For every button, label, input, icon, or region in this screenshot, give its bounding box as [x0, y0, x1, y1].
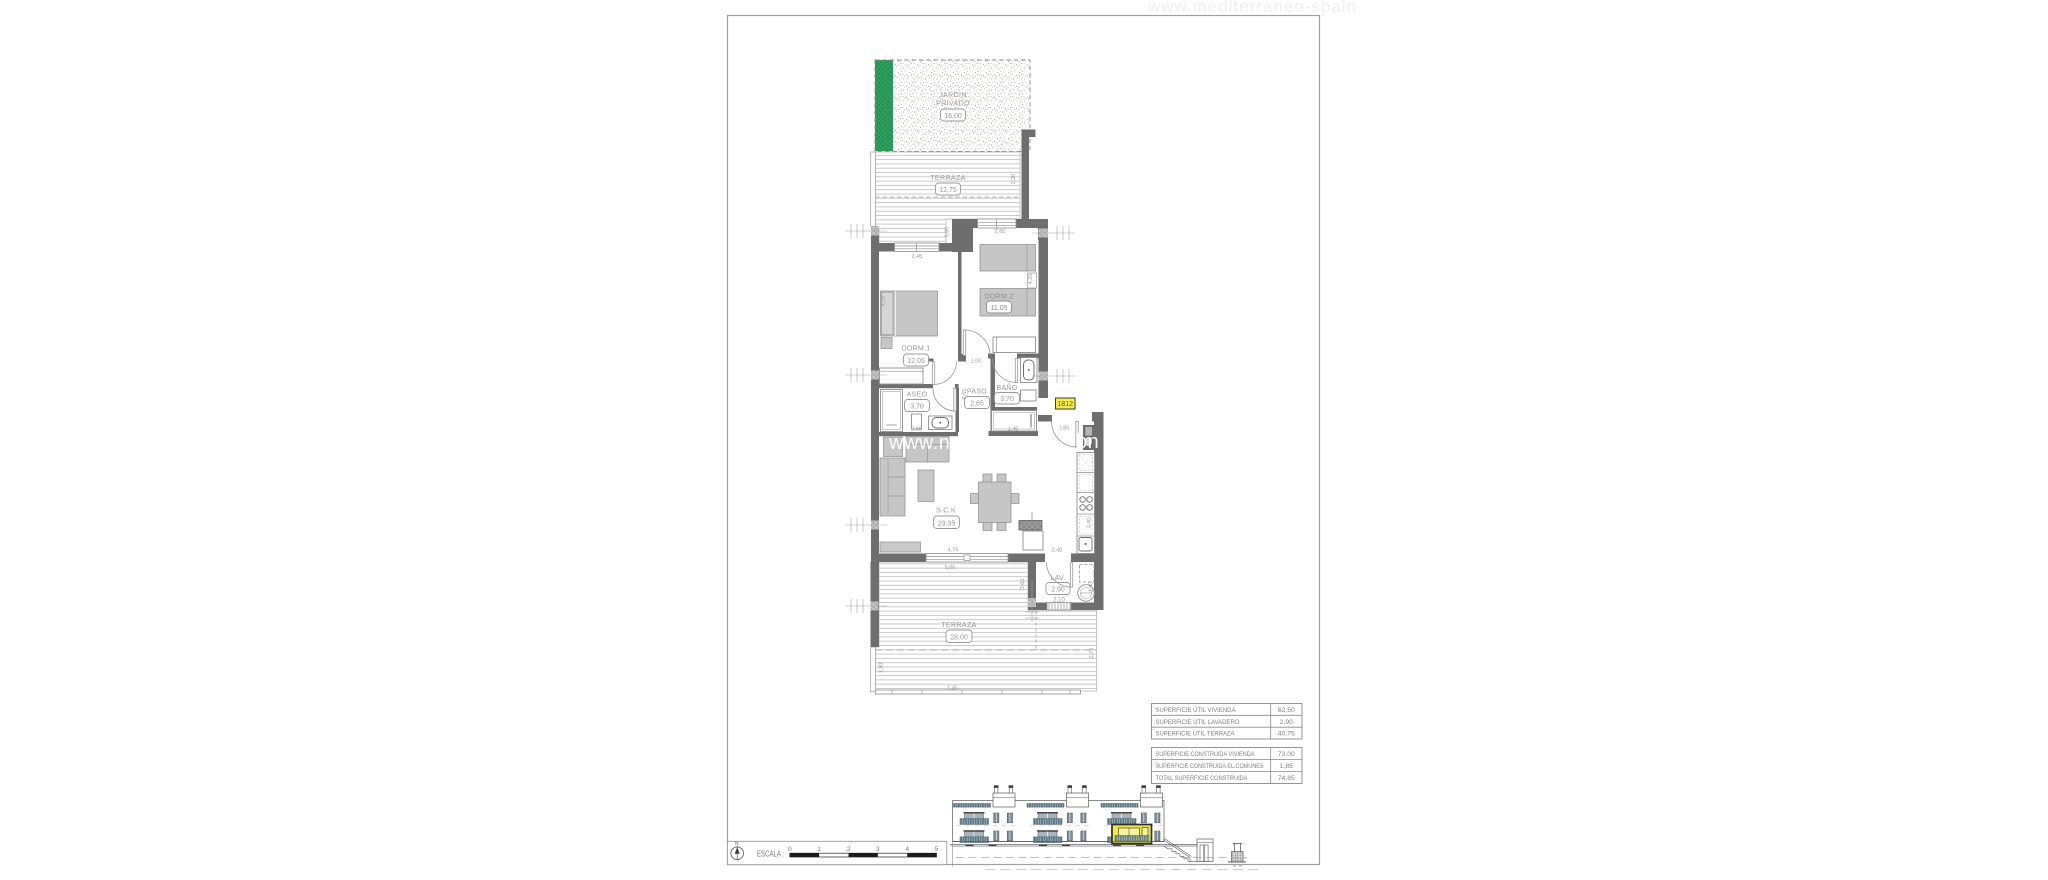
svg-text:2,65: 2,65 — [970, 400, 984, 407]
svg-text:3: 3 — [876, 846, 880, 853]
svg-text:2,60: 2,60 — [995, 229, 1006, 235]
svg-text:73,00: 73,00 — [1278, 751, 1295, 758]
svg-text:SUPERFICIE ÚTIL LAVADERO: SUPERFICIE ÚTIL LAVADERO — [1156, 717, 1240, 726]
svg-text:4,75: 4,75 — [948, 548, 959, 554]
svg-text:1,85: 1,85 — [1280, 763, 1293, 770]
svg-text:2,40: 2,40 — [1052, 548, 1063, 554]
svg-text:16,00: 16,00 — [944, 113, 962, 120]
svg-text:1,45: 1,45 — [1008, 427, 1019, 433]
svg-text:7,35: 7,35 — [947, 686, 958, 692]
svg-text:TOTAL SUPERFICIE CONSTRUIDA: TOTAL SUPERFICIE CONSTRUIDA — [1156, 775, 1248, 782]
svg-text:2: 2 — [847, 846, 851, 853]
svg-text:5,00: 5,00 — [945, 565, 956, 571]
svg-text:PASO: PASO — [967, 389, 987, 396]
svg-text:12,75: 12,75 — [939, 187, 957, 194]
svg-text:12,05: 12,05 — [907, 358, 925, 365]
svg-text:5: 5 — [935, 846, 939, 853]
svg-text:bn: bn — [1076, 431, 1099, 453]
svg-text:0,80: 0,80 — [945, 227, 951, 238]
svg-text:1,85: 1,85 — [1059, 426, 1070, 432]
svg-text:74,85: 74,85 — [1278, 775, 1295, 782]
svg-text:2,45: 2,45 — [912, 254, 923, 260]
svg-text:ESCALA :: ESCALA : — [757, 849, 784, 858]
svg-text:4: 4 — [905, 846, 909, 853]
svg-text:2,20: 2,20 — [1011, 174, 1017, 185]
svg-text:N: N — [735, 841, 739, 847]
svg-text:SUPERFICIE ÚTIL TERRAZA: SUPERFICIE ÚTIL TERRAZA — [1156, 729, 1235, 738]
svg-text:11,05: 11,05 — [991, 305, 1008, 312]
svg-text:2,65: 2,65 — [962, 389, 968, 400]
svg-text:PRIVADO: PRIVADO — [936, 101, 970, 108]
svg-text:3,60: 3,60 — [1020, 579, 1026, 590]
svg-text:28,00: 28,00 — [950, 634, 968, 641]
svg-text:2,75: 2,75 — [1089, 648, 1095, 659]
svg-text:0: 0 — [788, 846, 792, 853]
svg-text:4,25: 4,25 — [1028, 274, 1034, 285]
svg-text:2,90: 2,90 — [1280, 719, 1293, 726]
svg-text:S.C.K: S.C.K — [936, 508, 956, 515]
svg-text:JARDIN: JARDIN — [939, 92, 967, 99]
svg-text:1,90: 1,90 — [879, 663, 885, 674]
svg-text:DORM.1: DORM.1 — [901, 346, 930, 353]
svg-text:40,75: 40,75 — [1278, 731, 1295, 738]
svg-text:29,35: 29,35 — [938, 520, 956, 527]
svg-text:www.mediterraneo-spain: www.mediterraneo-spain — [1147, 0, 1357, 16]
svg-text:1,00: 1,00 — [971, 359, 982, 365]
svg-text:www.n: www.n — [888, 432, 950, 454]
svg-text:SUPERFICIE CONSTRUIDA EL.COMUN: SUPERFICIE CONSTRUIDA EL.COMUNES — [1156, 763, 1264, 770]
svg-text:2,90: 2,90 — [1051, 586, 1065, 593]
svg-text:3,70: 3,70 — [1000, 396, 1014, 403]
svg-text:3,40: 3,40 — [1087, 518, 1093, 529]
svg-text:1,40: 1,40 — [1089, 582, 1095, 593]
svg-text:ASEO: ASEO — [907, 392, 928, 399]
svg-text:BAÑO: BAÑO — [996, 383, 1017, 392]
svg-text:DORM.2: DORM.2 — [984, 294, 1013, 301]
svg-text:1: 1 — [817, 846, 821, 853]
svg-text:62,50: 62,50 — [1278, 707, 1295, 714]
svg-text:4,55: 4,55 — [881, 296, 887, 307]
svg-text:TERRAZA: TERRAZA — [930, 175, 965, 182]
svg-text:TERRAZA: TERRAZA — [941, 622, 976, 629]
svg-text:SUPERFICIE CONSTRUIDA VIVIENDA: SUPERFICIE CONSTRUIDA VIVIENDA — [1156, 751, 1255, 758]
svg-text:3,70: 3,70 — [910, 403, 924, 410]
svg-text:2,10: 2,10 — [1053, 598, 1065, 604]
svg-text:SUPERFICIE ÚTIL VIVIENDA: SUPERFICIE ÚTIL VIVIENDA — [1156, 705, 1236, 714]
svg-text:1812: 1812 — [1057, 401, 1073, 408]
